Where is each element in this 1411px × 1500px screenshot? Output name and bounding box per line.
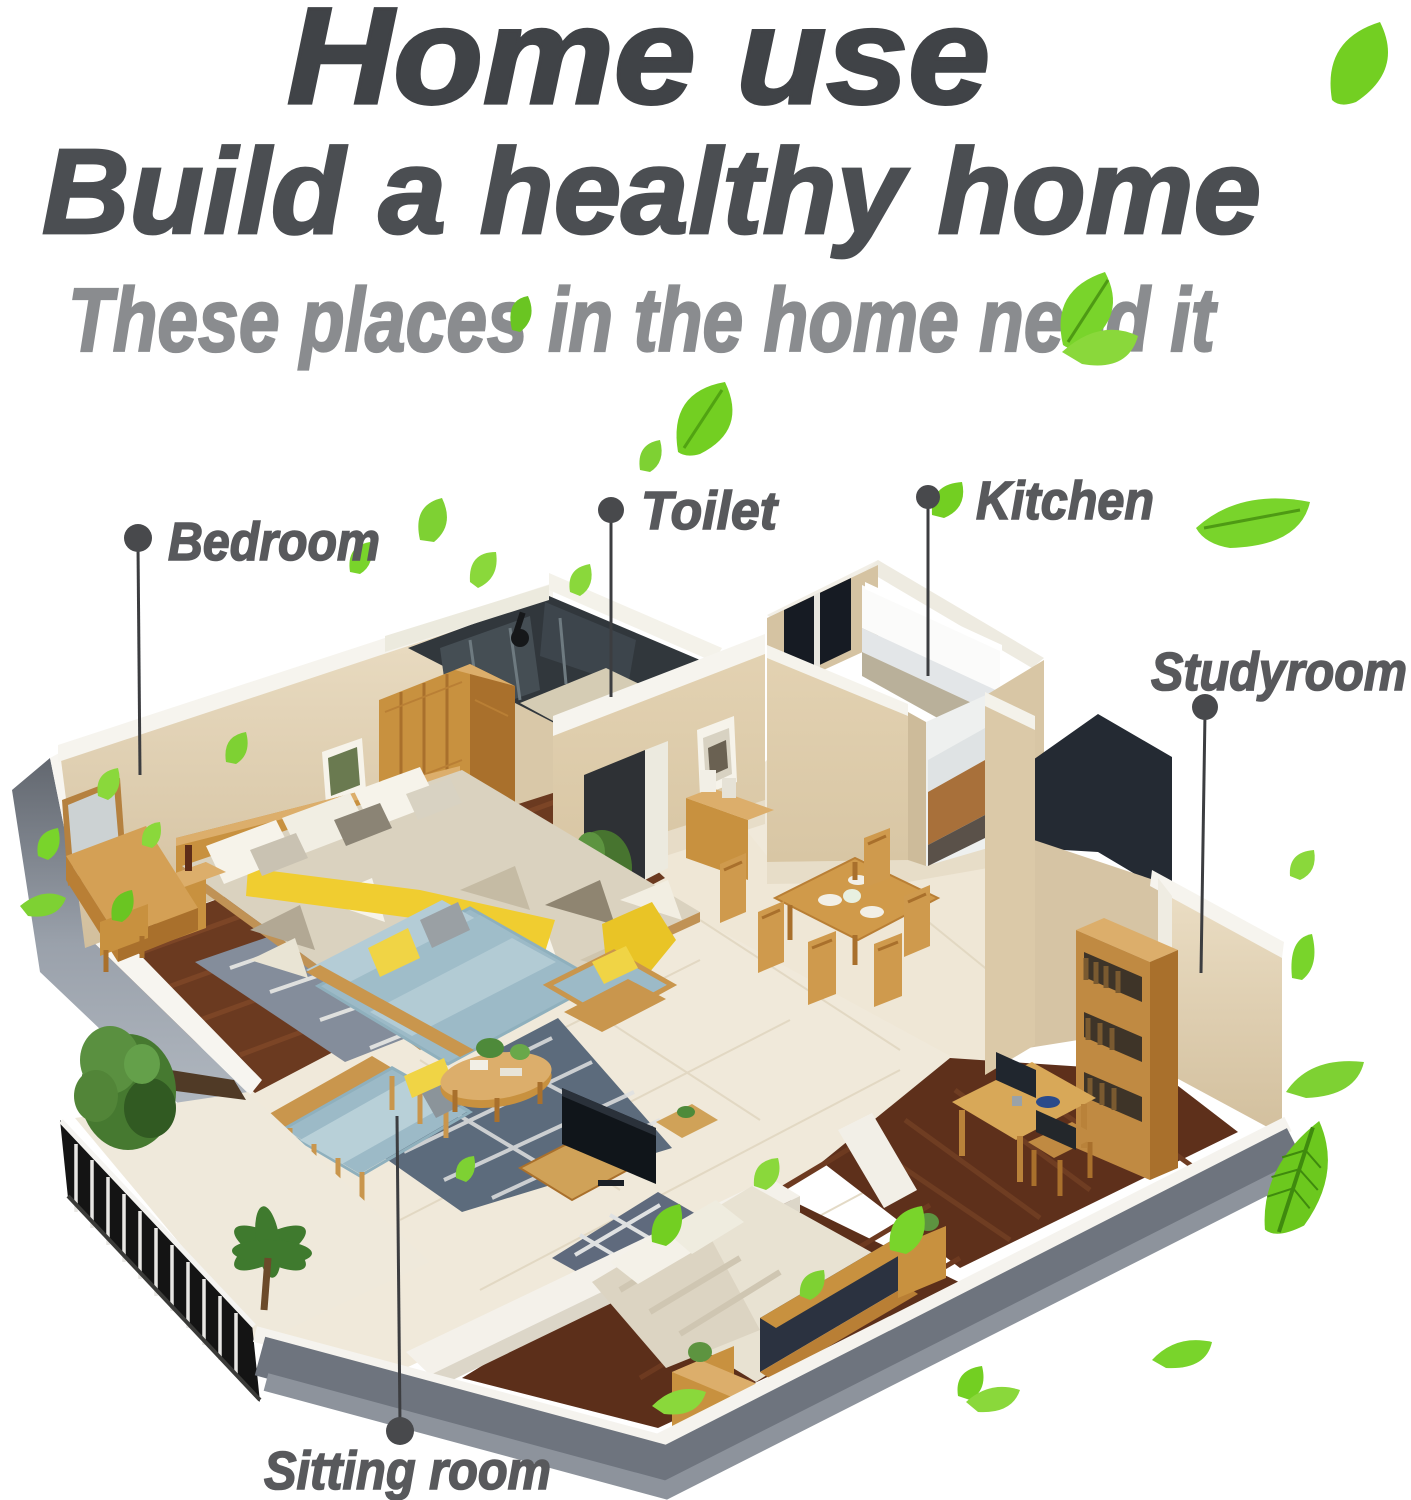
svg-text:Build a healthy home: Build a healthy home [42, 123, 1261, 259]
svg-text:Kitchen: Kitchen [976, 471, 1154, 531]
svg-text:Sitting room: Sitting room [264, 1441, 551, 1500]
svg-text:These places in the home need: These places in the home need it [68, 271, 1218, 371]
svg-text:Home use: Home use [287, 0, 990, 133]
svg-text:Studyroom: Studyroom [1151, 642, 1407, 702]
svg-text:Toilet: Toilet [641, 481, 779, 541]
svg-text:Bedroom: Bedroom [168, 512, 380, 572]
